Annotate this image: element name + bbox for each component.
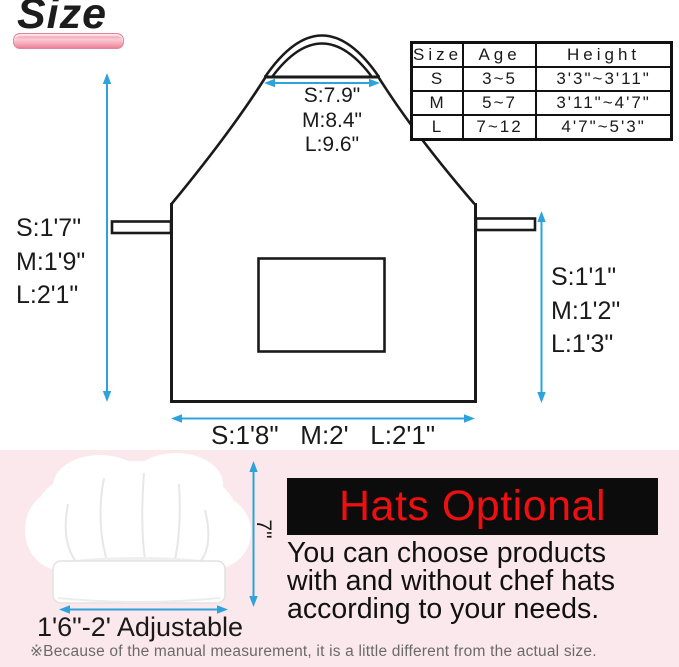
table-row-l: L 7~12 4'7"~5'3" xyxy=(412,115,672,140)
header-height: Height xyxy=(536,43,672,68)
neck-width-l: L:9.6" xyxy=(280,133,384,158)
body-line-1: You can choose products xyxy=(287,539,615,567)
neck-strap-outer-arc xyxy=(265,36,379,78)
waist-tie-right xyxy=(476,219,535,231)
table-row-s: S 3~5 3'3"~3'11" xyxy=(412,67,672,91)
hats-optional-body: You can choose products with and without… xyxy=(287,539,615,623)
apron-left-shoulder-curve xyxy=(172,78,266,204)
apron-drop-s: S:1'1" xyxy=(551,261,620,295)
hats-optional-banner: Hats Optional xyxy=(287,478,658,535)
size-table: Size Age Height S 3~5 3'3"~3'11" M 5~7 3… xyxy=(410,41,673,141)
body-line-3: according to your needs. xyxy=(287,595,615,623)
cell-age: 7~12 xyxy=(463,115,536,140)
apron-body-outline xyxy=(172,203,476,402)
apron-drop-m: M:1'2" xyxy=(551,295,620,329)
cell-age: 3~5 xyxy=(463,67,536,91)
apron-drop-arrow-right xyxy=(537,211,545,403)
apron-size-chart: Size xyxy=(0,0,679,667)
cell-size: M xyxy=(412,91,464,115)
neck-width-s: S:7.9" xyxy=(280,84,384,109)
apron-drop-l: L:1'3" xyxy=(551,328,620,362)
apron-drop-label: S:1'1" M:1'2" L:1'3" xyxy=(551,261,620,362)
cell-age: 5~7 xyxy=(463,91,536,115)
apron-height-arrow-left xyxy=(103,73,111,402)
cell-height: 3'3"~3'11" xyxy=(536,67,672,91)
apron-height-m: M:1'9" xyxy=(16,246,85,280)
cell-size: S xyxy=(412,67,464,91)
hat-adjustable-label: 1'6"-2' Adjustable xyxy=(30,612,250,643)
neck-strap-inner-arc xyxy=(272,44,372,78)
cell-size: L xyxy=(412,115,464,140)
apron-height-l: L:2'1" xyxy=(16,279,85,313)
measurement-disclaimer: ※Because of the manual measurement, it i… xyxy=(30,642,597,661)
header-age: Age xyxy=(463,43,536,68)
cell-height: 3'11"~4'7" xyxy=(536,91,672,115)
title-underline-bar xyxy=(13,33,124,49)
cell-height: 4'7"~5'3" xyxy=(536,115,672,140)
hats-optional-heading: Hats Optional xyxy=(339,482,606,531)
table-row-m: M 5~7 3'11"~4'7" xyxy=(412,91,672,115)
bottom-width-label: S:1'8" M:2' L:2'1" xyxy=(158,420,488,451)
waist-tie-left xyxy=(112,222,171,234)
neck-width-m: M:8.4" xyxy=(280,109,384,134)
header-size: Size xyxy=(412,43,464,68)
apron-height-label: S:1'7" M:1'9" L:2'1" xyxy=(16,212,85,313)
apron-pocket xyxy=(259,259,385,352)
neck-width-label: S:7.9" M:8.4" L:9.6" xyxy=(280,84,384,158)
size-table-header-row: Size Age Height xyxy=(412,43,672,68)
hat-height-label: 7" xyxy=(251,509,275,549)
apron-height-s: S:1'7" xyxy=(16,212,85,246)
body-line-2: with and without chef hats xyxy=(287,567,615,595)
